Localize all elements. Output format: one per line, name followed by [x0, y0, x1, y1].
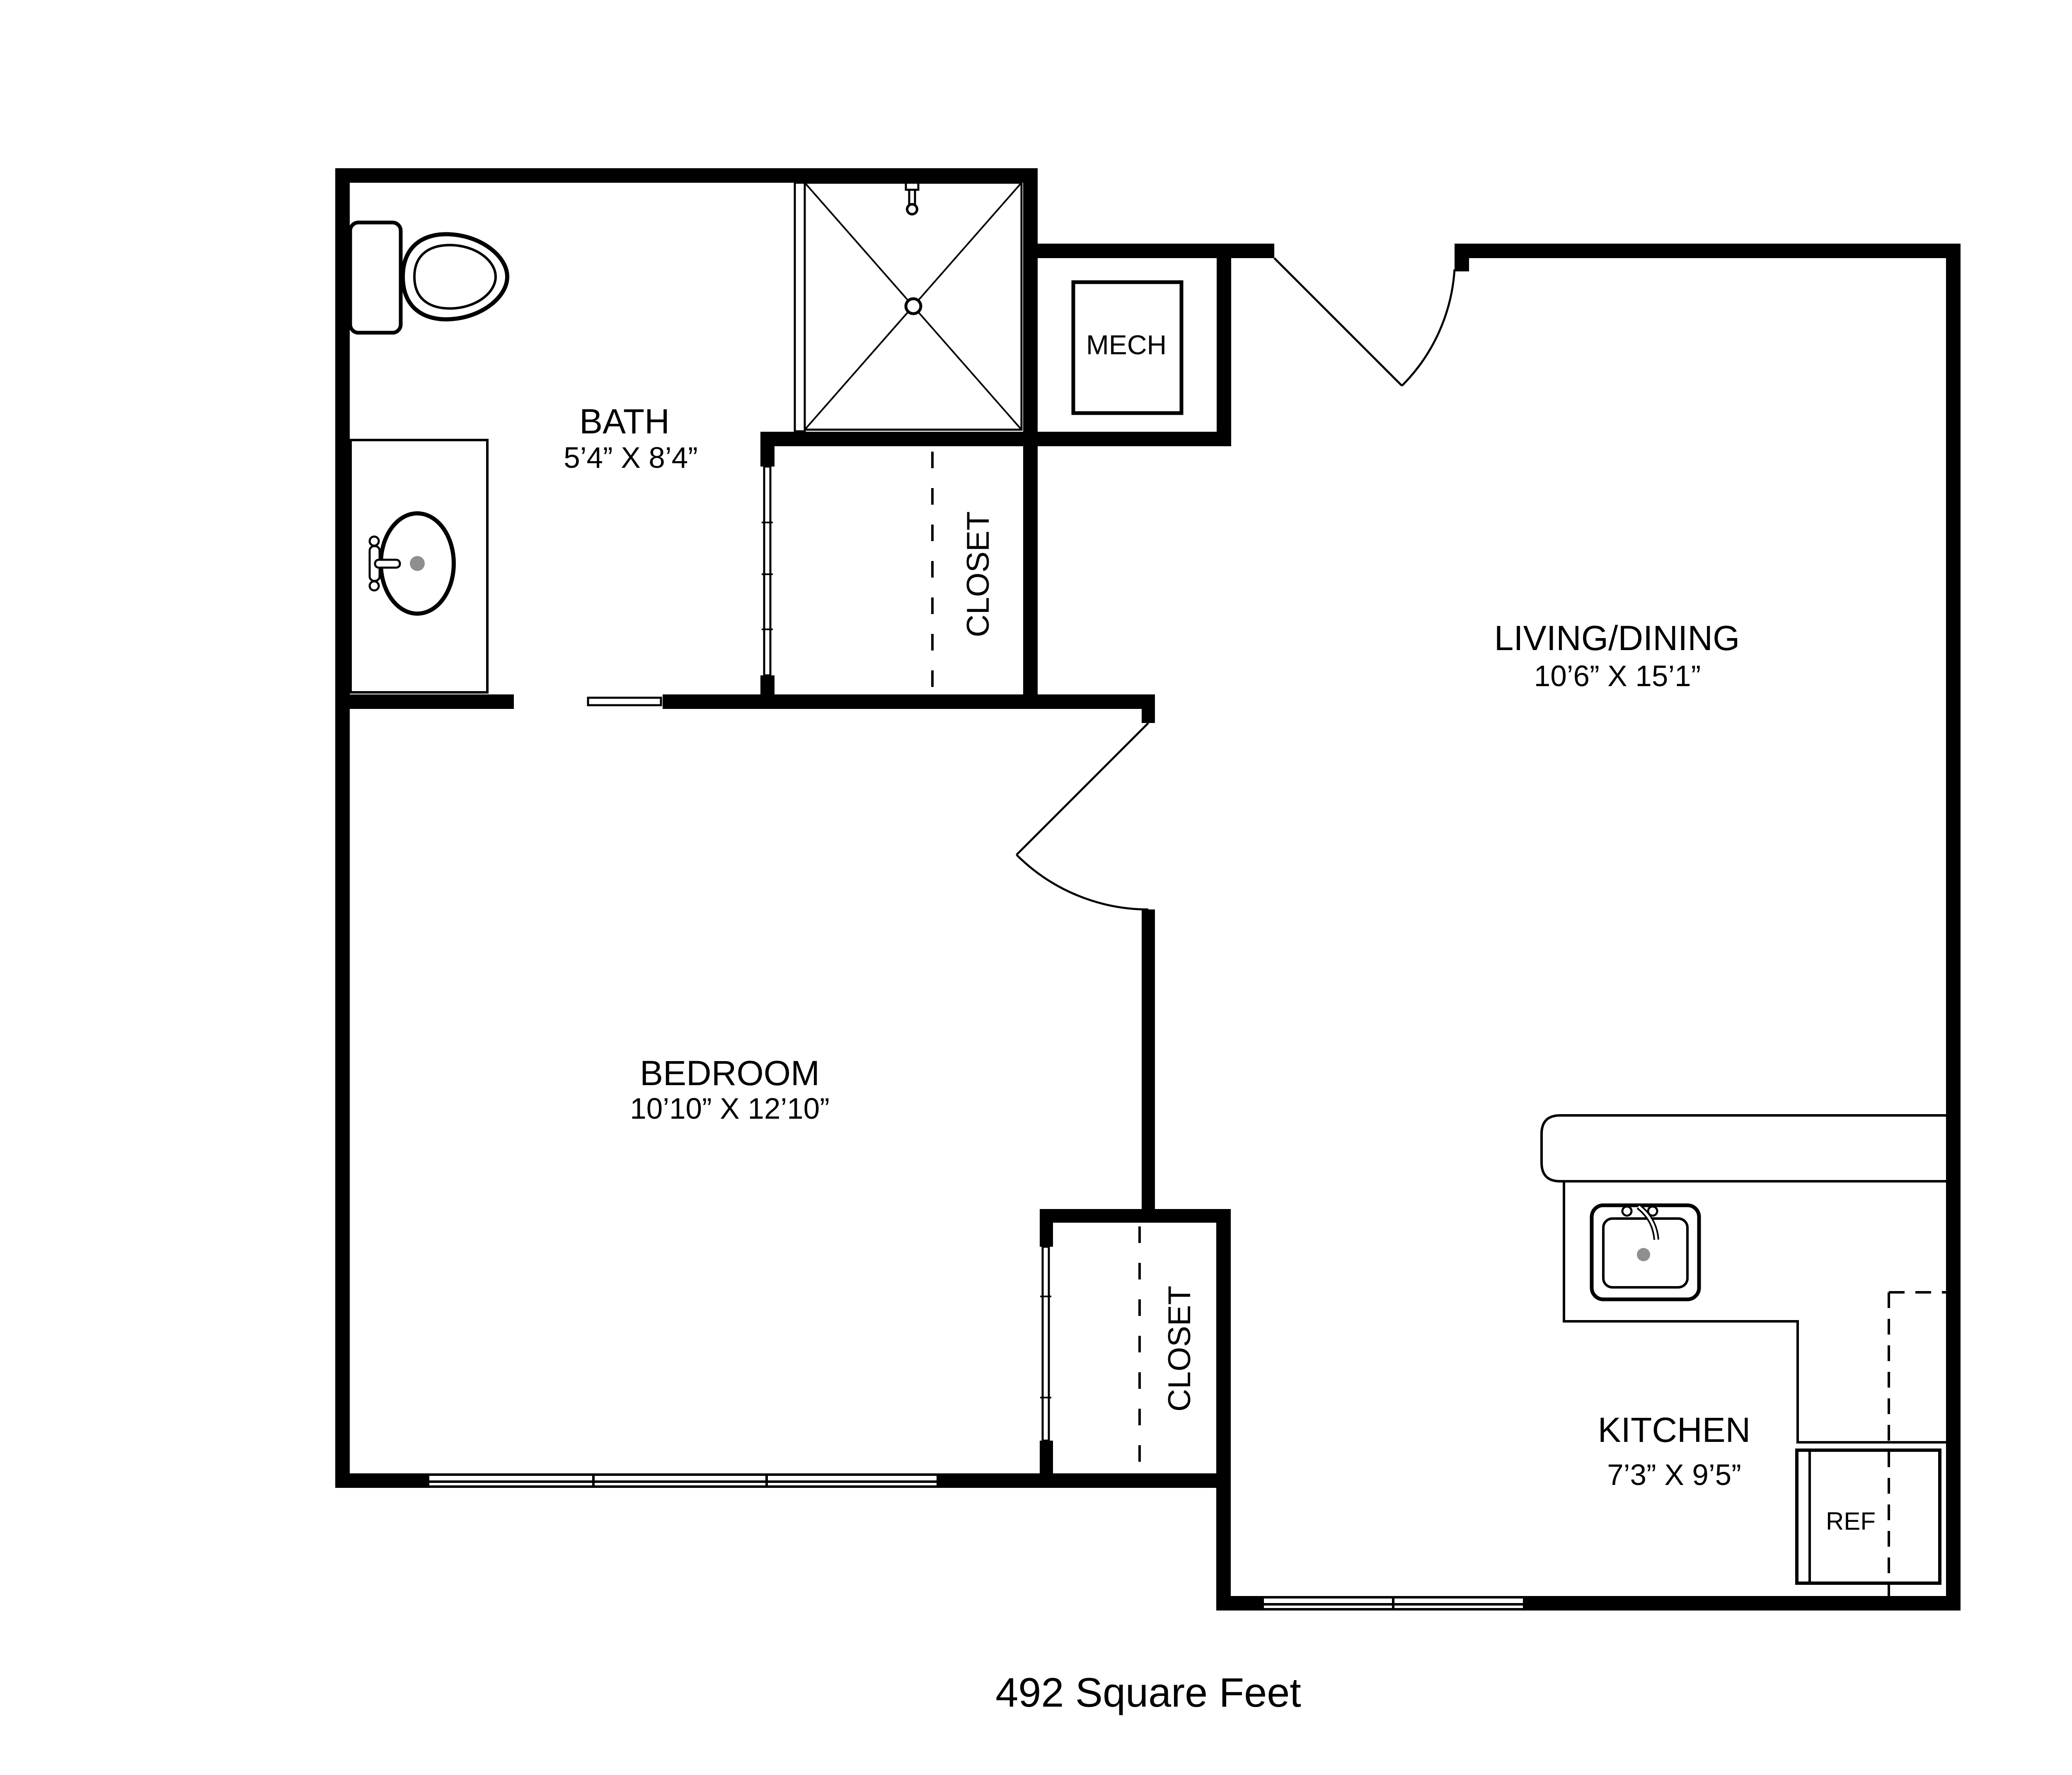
svg-text:10’10” X 12’10”: 10’10” X 12’10”: [630, 1093, 830, 1125]
svg-text:10’6” X 15’1”: 10’6” X 15’1”: [1534, 660, 1701, 693]
svg-text:KITCHEN: KITCHEN: [1598, 1410, 1751, 1449]
svg-text:BATH: BATH: [579, 402, 670, 441]
svg-text:MECH: MECH: [1086, 329, 1167, 360]
svg-text:BEDROOM: BEDROOM: [640, 1054, 820, 1093]
svg-text:LIVING/DINING: LIVING/DINING: [1494, 619, 1740, 658]
svg-text:7’3” X 9’5”: 7’3” X 9’5”: [1607, 1459, 1741, 1492]
svg-text:CLOSET: CLOSET: [1162, 1286, 1197, 1412]
svg-text:5’4” X 8’4”: 5’4” X 8’4”: [564, 442, 698, 474]
svg-text:492 Square Feet: 492 Square Feet: [995, 1669, 1301, 1715]
svg-text:REF: REF: [1826, 1507, 1876, 1535]
svg-text:CLOSET: CLOSET: [961, 511, 996, 637]
